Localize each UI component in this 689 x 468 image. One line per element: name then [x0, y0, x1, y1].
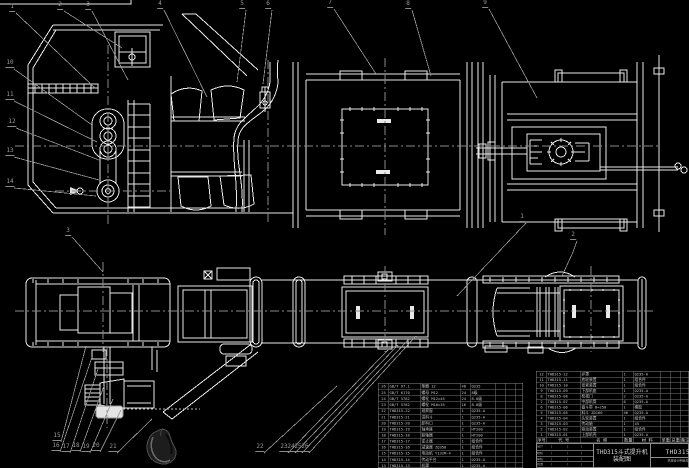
- balloon-number: 11: [5, 92, 14, 100]
- parts-cell: [516, 426, 523, 432]
- parts-cell: THD315-20: [389, 420, 421, 426]
- parts-cell: 1: [623, 372, 634, 378]
- parts-row: 18THD315-18联轴器1HT200: [379, 432, 523, 438]
- parts-cell: [671, 400, 681, 405]
- signature-cell: 批准: [537, 463, 544, 465]
- parts-cell: 观察窗: [421, 408, 461, 414]
- parts-cell: 8: [537, 394, 547, 399]
- parts-cell: [516, 439, 523, 445]
- parts-row: 8THD315-08检视门2Q235-A: [537, 394, 689, 400]
- parts-cell: 1: [623, 405, 634, 410]
- signature-row: 批准: [537, 461, 593, 467]
- parts-cell: [671, 411, 681, 416]
- balloon-number: 21: [108, 444, 117, 452]
- parts-cell: [516, 408, 523, 414]
- parts-cell: [506, 433, 516, 439]
- parts-cell: 1: [461, 457, 471, 463]
- parts-cell: 8级: [471, 390, 496, 396]
- leader-line: [457, 223, 526, 296]
- parts-cell: Q235-A: [471, 414, 496, 420]
- elevation-boot-takeup: [476, 55, 687, 232]
- parts-row: 12THD315-12护罩1Q235-A: [537, 372, 689, 378]
- parts-cell: 13: [379, 463, 389, 468]
- leader-line: [412, 10, 431, 76]
- parts-cell: 传动平台: [421, 457, 461, 463]
- parts-cell: [506, 390, 516, 396]
- parts-cell: THD315-06: [547, 405, 581, 410]
- parts-cell: 1: [461, 439, 471, 445]
- parts-cell: THD315-04: [547, 416, 581, 421]
- parts-cell: Q235-A: [634, 411, 661, 416]
- parts-cell: 1: [623, 433, 634, 438]
- door-handle: [356, 306, 360, 319]
- plan-boot: [483, 272, 646, 353]
- parts-cell: THD315-02: [547, 427, 581, 432]
- plate-slot: [606, 305, 610, 318]
- ink-blob: [147, 428, 176, 464]
- parts-cell: [671, 372, 681, 378]
- parts-cell: 逆止器: [421, 439, 461, 445]
- parts-cell: 2: [623, 394, 634, 399]
- balloon-number: 1: [9, 4, 15, 12]
- parts-cell: [661, 422, 671, 427]
- leader-line: [562, 241, 577, 276]
- drawing-number-cell: THD315-00 机械设计制造及其自动化: [651, 444, 689, 467]
- parts-cell: 48: [461, 384, 471, 390]
- balloon-number: 26: [300, 444, 309, 452]
- parts-cell: 1: [537, 433, 547, 438]
- elevation-middle-casing: [293, 62, 472, 228]
- parts-cell: 20: [379, 420, 389, 426]
- parts-cell: Q235-A: [634, 389, 661, 394]
- balloon-number: 3: [65, 228, 71, 236]
- elevation-sprocket-chain: [70, 100, 150, 212]
- leader-line: [288, 350, 388, 453]
- parts-cell: [681, 378, 689, 383]
- balloon-number: 3: [85, 2, 91, 10]
- parts-cell: Q235-A: [471, 457, 496, 463]
- signature-cell: [581, 445, 587, 448]
- parts-cell: Q235-A: [634, 433, 661, 438]
- parts-cell: THD315-09: [547, 389, 581, 394]
- parts-cell: [671, 433, 681, 438]
- parts-cell: GB/T 5782: [389, 396, 421, 402]
- parts-cell: GB/T 97.1: [389, 384, 421, 390]
- signature-cell: [567, 463, 574, 465]
- parts-cell: THD315-05: [547, 411, 581, 416]
- parts-cell: 2: [537, 427, 547, 432]
- parts-cell: 10: [537, 383, 547, 388]
- parts-cell: [506, 439, 516, 445]
- parts-row: 10THD315-10张紧装置1组合件: [537, 383, 689, 389]
- parts-row: 16THD315-16减速器 ZQ3501组合件: [379, 444, 523, 450]
- parts-cell: THD315-14: [389, 457, 421, 463]
- parts-cell: [516, 396, 523, 402]
- parts-cell: 25: [379, 390, 389, 396]
- parts-cell: 1: [461, 408, 471, 414]
- parts-cell: [516, 384, 523, 390]
- leader-line: [489, 9, 537, 98]
- parts-cell: [681, 389, 689, 394]
- balloon-number: 9: [482, 0, 488, 8]
- balloon-number: 13: [5, 148, 14, 156]
- parts-row: 23GB/T 5782螺栓 M10×35168.8级: [379, 402, 523, 408]
- signature-cell: [581, 463, 587, 465]
- parts-cell: THD315-08: [547, 394, 581, 399]
- parts-cell: THD315-16: [389, 445, 421, 451]
- parts-cell: 螺母 M12: [421, 390, 461, 396]
- parts-cell: [506, 384, 516, 390]
- parts-cell: Q235-A: [471, 463, 496, 468]
- parts-cell: 4: [537, 416, 547, 421]
- parts-cell: THD315-18: [389, 433, 421, 439]
- parts-cell: 料斗 ZD160: [581, 411, 623, 416]
- parts-cell: [661, 383, 671, 388]
- parts-cell: 22: [379, 408, 389, 414]
- parts-cell: [661, 372, 671, 378]
- parts-row: 3THD315-03传动轴145: [537, 421, 689, 427]
- cad-canvas: 26GB/T 97.1垫圈 1248Q23525GB/T 6170螺母 M122…: [0, 0, 689, 468]
- frame-border-corner: [0, 0, 131, 4]
- parts-cell: 1: [623, 427, 634, 432]
- balloon-number: 22: [255, 444, 264, 452]
- elevation-bucket-zone: [171, 14, 278, 212]
- signature-cell: [551, 457, 559, 459]
- parts-cell: [516, 445, 523, 451]
- parts-row: 2THD315-02驱动装置1组合件: [537, 427, 689, 433]
- org-line: 机械设计制造及其自动化: [667, 459, 689, 462]
- parts-cell: 8.8级: [471, 402, 496, 408]
- parts-cell: 3: [537, 422, 547, 427]
- parts-cell: 7: [537, 400, 547, 405]
- parts-cell: 23: [379, 402, 389, 408]
- parts-cell: HT200: [471, 433, 496, 439]
- parts-cell: 联轴器: [421, 433, 461, 439]
- leader-line: [14, 69, 92, 125]
- leader-line: [263, 10, 272, 84]
- parts-cell: 卸料口: [421, 420, 461, 426]
- signature-cell: 校核: [537, 452, 544, 454]
- parts-cell: [516, 463, 523, 468]
- parts-cell: 下部机座: [581, 389, 623, 394]
- parts-cell: [496, 420, 506, 426]
- parts-cell: 组合件: [471, 451, 496, 457]
- parts-cell: 组合件: [634, 416, 661, 421]
- parts-cell: 检视门: [581, 394, 623, 399]
- parts-cell: [506, 463, 516, 468]
- parts-cell: [661, 394, 671, 399]
- parts-cell: 机罩: [421, 463, 461, 468]
- parts-cell: 螺栓 M10×35: [421, 402, 461, 408]
- parts-cell: 14: [379, 457, 389, 463]
- parts-cell: 1: [461, 433, 471, 439]
- balloon-number: 20: [91, 443, 100, 451]
- parts-cell: 组合件: [471, 439, 496, 445]
- balloon-number: 1: [519, 214, 525, 222]
- parts-cell: 11: [537, 378, 547, 383]
- parts-cell: [681, 427, 689, 432]
- parts-cell: [506, 426, 516, 432]
- parts-cell: 组合件: [634, 427, 661, 432]
- parts-cell: 1: [461, 414, 471, 420]
- drawing-title: THD315斗式提升机: [596, 448, 648, 455]
- parts-cell: 17: [379, 439, 389, 445]
- parts-cell: [496, 439, 506, 445]
- parts-cell: [671, 378, 681, 383]
- parts-cell: [506, 445, 516, 451]
- parts-cell: 电动机 Y132M-4: [421, 451, 461, 457]
- parts-row: 14THD315-14传动平台1Q235-A: [379, 456, 523, 462]
- parts-list-table-left: 26GB/T 97.1垫圈 1248Q23525GB/T 6170螺母 M122…: [378, 383, 523, 468]
- parts-cell: [661, 411, 671, 416]
- parts-cell: 组合件: [634, 378, 661, 383]
- balloon-number: 2: [570, 232, 576, 240]
- parts-cell: 16: [461, 402, 471, 408]
- parts-cell: 轴承座: [421, 426, 461, 432]
- parts-row: 6THD315-06畚斗带 B=2501橡胶: [537, 405, 689, 411]
- parts-row: 26GB/T 97.1垫圈 1248Q235: [379, 384, 523, 390]
- parts-cell: [506, 396, 516, 402]
- leader-line: [164, 10, 207, 97]
- parts-cell: THD315-19: [389, 426, 421, 432]
- parts-cell: 1: [461, 451, 471, 457]
- parts-cell: 减速器 ZQ350: [421, 445, 461, 451]
- parts-cell: THD315-13: [389, 463, 421, 468]
- parts-cell: [496, 390, 506, 396]
- door-handle: [377, 119, 391, 123]
- plan-neck-chute: [152, 268, 258, 419]
- leader-line: [14, 101, 97, 142]
- parts-cell: 上部机壳: [581, 433, 623, 438]
- parts-cell: [681, 422, 689, 427]
- signature-cell: [567, 452, 574, 454]
- parts-cell: Q235-A: [471, 408, 496, 414]
- parts-cell: THD315-17: [389, 439, 421, 445]
- parts-cell: 24: [461, 396, 471, 402]
- leader-line: [14, 188, 96, 196]
- parts-cell: [506, 420, 516, 426]
- parts-cell: 45: [634, 422, 661, 427]
- parts-row: 1THD315-01上部机壳1Q235-A: [537, 432, 689, 438]
- parts-cell: 5: [537, 411, 547, 416]
- parts-cell: 头轮装置: [581, 416, 623, 421]
- parts-row: 7THD315-07中部机筒6Q235-A: [537, 399, 689, 405]
- balloon-number: 14: [5, 179, 14, 187]
- parts-cell: 橡胶: [634, 405, 661, 410]
- parts-cell: [506, 402, 516, 408]
- parts-cell: 16: [379, 445, 389, 451]
- parts-cell: THD315-01: [547, 433, 581, 438]
- parts-cell: [681, 416, 689, 421]
- parts-cell: THD315-12: [547, 372, 581, 378]
- parts-cell: [681, 411, 689, 416]
- balloon-number: 5: [239, 1, 245, 9]
- parts-cell: Q235-A: [634, 394, 661, 399]
- parts-cell: [516, 390, 523, 396]
- parts-cell: 底轮装置: [581, 378, 623, 383]
- parts-row: 17THD315-17逆止器1组合件: [379, 438, 523, 444]
- balloon-number: 15: [52, 433, 61, 441]
- parts-row: 5THD315-05料斗 ZD16046Q235-A: [537, 410, 689, 416]
- parts-cell: [496, 445, 506, 451]
- parts-cell: 6: [623, 400, 634, 405]
- balloon-number: 12: [7, 119, 16, 127]
- parts-row: 22THD315-22观察窗1Q235-A: [379, 408, 523, 414]
- parts-cell: [681, 433, 689, 438]
- parts-cell: [506, 408, 516, 414]
- parts-cell: 15: [379, 451, 389, 457]
- parts-cell: [671, 422, 681, 427]
- parts-cell: 18: [379, 433, 389, 439]
- parts-cell: [681, 400, 689, 405]
- parts-cell: [681, 372, 689, 378]
- parts-cell: [496, 408, 506, 414]
- balloon-number: 2: [57, 2, 63, 10]
- leader-line: [72, 237, 103, 272]
- parts-cell: 24: [461, 390, 471, 396]
- parts-cell: GB/T 6170: [389, 390, 421, 396]
- bucket-bolt: [260, 87, 270, 112]
- parts-cell: 1: [461, 445, 471, 451]
- parts-cell: [516, 402, 523, 408]
- parts-cell: [496, 426, 506, 432]
- parts-cell: [681, 405, 689, 410]
- parts-cell: [661, 433, 671, 438]
- signature-cell: [551, 463, 559, 465]
- parts-cell: THD315-21: [389, 414, 421, 420]
- parts-cell: [671, 416, 681, 421]
- parts-cell: 46: [623, 411, 634, 416]
- parts-cell: HT200: [471, 426, 496, 432]
- parts-cell: 驱动装置: [581, 427, 623, 432]
- parts-cell: 1: [623, 389, 634, 394]
- parts-row: 20THD315-20卸料口1Q235-A: [379, 420, 523, 426]
- parts-cell: GB/T 5782: [389, 402, 421, 408]
- parts-cell: [661, 378, 671, 383]
- parts-cell: 传动轴: [581, 422, 623, 427]
- parts-cell: [671, 389, 681, 394]
- drawing-number: THD315-00: [651, 448, 689, 458]
- parts-row: 19THD315-19轴承座2HT200: [379, 426, 523, 432]
- parts-cell: 畚斗带 B=250: [581, 405, 623, 410]
- parts-cell: [506, 457, 516, 463]
- parts-cell: [671, 405, 681, 410]
- leader-line: [334, 9, 376, 74]
- parts-cell: [496, 433, 506, 439]
- parts-cell: [671, 383, 681, 388]
- parts-row: 9THD315-09下部机座1Q235-A: [537, 388, 689, 394]
- parts-cell: [496, 457, 506, 463]
- balloon-number: 7: [327, 0, 333, 8]
- parts-cell: 1: [623, 416, 634, 421]
- parts-list-table-right: 12THD315-12护罩1Q235-A11THD315-11底轮装置1组合件1…: [536, 371, 689, 443]
- signature-grid: 设计校核审核批准: [537, 444, 594, 467]
- balloon-number: 16: [51, 443, 60, 451]
- parts-cell: [661, 400, 671, 405]
- parts-cell: [496, 402, 506, 408]
- balloon-number: 8: [405, 1, 411, 9]
- parts-cell: THD315-22: [389, 408, 421, 414]
- elevation-view: [28, 14, 687, 232]
- parts-cell: [496, 396, 506, 402]
- balloon-number: 4: [157, 1, 163, 9]
- parts-cell: 张紧装置: [581, 383, 623, 388]
- boot-flange-plate: [560, 286, 623, 341]
- leader-line: [14, 157, 99, 180]
- parts-cell: [496, 414, 506, 420]
- parts-cell: 1: [461, 463, 471, 468]
- balloon-number: 18: [71, 443, 80, 451]
- parts-cell: 1: [623, 422, 634, 427]
- parts-cell: THD315-07: [547, 400, 581, 405]
- parts-row: 24GB/T 5782螺栓 M12×45248.8级: [379, 396, 523, 402]
- signature-cell: [567, 457, 574, 459]
- title-block: 设计校核审核批准 THD315斗式提升机 装配图 THD315-00 机械设计制…: [536, 443, 689, 468]
- door-handle: [376, 170, 390, 174]
- parts-cell: 21: [379, 414, 389, 420]
- parts-cell: [496, 463, 506, 468]
- balloon-number: 17: [61, 444, 70, 452]
- parts-cell: [661, 389, 671, 394]
- parts-cell: 中部机筒: [581, 400, 623, 405]
- parts-row: 21THD315-21进料斗1Q235-A: [379, 414, 523, 420]
- parts-row: 25GB/T 6170螺母 M12248级: [379, 390, 523, 396]
- parts-cell: 24: [379, 396, 389, 402]
- parts-cell: [516, 433, 523, 439]
- parts-cell: [661, 416, 671, 421]
- parts-cell: THD315-03: [547, 422, 581, 427]
- balloon-number: 10: [5, 60, 14, 68]
- parts-cell: [661, 405, 671, 410]
- signature-cell: [567, 445, 574, 448]
- parts-cell: [496, 451, 506, 457]
- plan-head: [26, 278, 170, 347]
- signature-cell: [581, 452, 587, 454]
- parts-cell: [661, 427, 671, 432]
- parts-cell: 护罩: [581, 372, 623, 378]
- parts-cell: [516, 451, 523, 457]
- plan-drive-unit: [85, 347, 200, 418]
- parts-cell: THD315-11: [547, 378, 581, 383]
- parts-cell: THD315-15: [389, 451, 421, 457]
- parts-cell: Q235-A: [634, 400, 661, 405]
- parts-cell: [671, 394, 681, 399]
- parts-cell: 1: [461, 420, 471, 426]
- parts-cell: 1: [623, 378, 634, 383]
- parts-cell: 8.8级: [471, 396, 496, 402]
- parts-row: 13THD315-13机罩1Q235-A: [379, 462, 523, 468]
- parts-cell: 9: [537, 389, 547, 394]
- leader-line: [61, 346, 86, 442]
- parts-cell: 进料斗: [421, 414, 461, 420]
- parts-cell: [516, 420, 523, 426]
- parts-cell: [496, 384, 506, 390]
- parts-cell: 垫圈 12: [421, 384, 461, 390]
- signature-cell: 审核: [537, 457, 544, 459]
- parts-cell: 螺栓 M12×45: [421, 396, 461, 402]
- signature-cell: 设计: [537, 445, 544, 448]
- balloon-number: 6: [265, 1, 271, 9]
- parts-cell: Q235-A: [634, 372, 661, 378]
- parts-cell: [681, 394, 689, 399]
- parts-cell: [516, 457, 523, 463]
- title-cell: THD315斗式提升机 装配图: [594, 444, 651, 467]
- parts-cell: 12: [537, 372, 547, 378]
- parts-cell: 19: [379, 426, 389, 432]
- parts-cell: 6: [537, 405, 547, 410]
- parts-cell: 2: [461, 426, 471, 432]
- parts-cell: [681, 383, 689, 388]
